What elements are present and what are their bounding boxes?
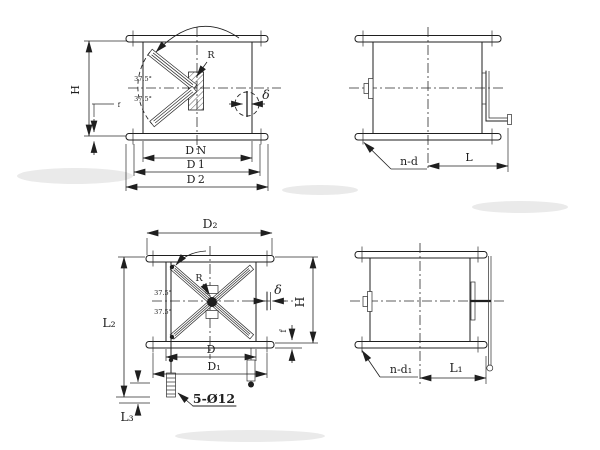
smudge <box>472 201 568 213</box>
label-f: f <box>279 328 288 332</box>
smudge <box>17 168 133 184</box>
drawing-canvas: H R 37.5° 37.5° <box>0 0 600 450</box>
shaft-end-inner <box>368 292 373 312</box>
label-d2: D2 <box>187 173 208 186</box>
bracket-end-tab <box>508 115 512 125</box>
hanging-bolt <box>247 348 255 388</box>
square-side-view: n-d₁ L₁ <box>350 243 505 384</box>
l1-dimension: L₁ <box>420 356 486 384</box>
label-l3: L₃ <box>120 409 133 424</box>
blade-line <box>152 55 192 87</box>
anchor-bolt-callout: 5-Ø12 <box>178 391 236 406</box>
round-side-view: n-d L <box>349 27 512 172</box>
hinge-pin <box>170 265 174 269</box>
leader <box>178 393 193 406</box>
label-angle-lower: 37.5° <box>134 95 152 103</box>
operating-rod <box>167 262 176 397</box>
bearing-block-lower <box>206 311 218 319</box>
d2-dimension: D₂ <box>147 216 272 255</box>
threaded-stud <box>167 373 176 397</box>
center-hub <box>207 297 217 307</box>
side-bracket <box>482 71 512 125</box>
blade-thickness-detail: δ <box>229 87 270 117</box>
l2-dimension: L₂ <box>102 257 150 397</box>
blade-line <box>154 90 192 121</box>
bolt-head <box>248 382 254 388</box>
label-d1: D1 <box>187 158 208 171</box>
label-l1: L₁ <box>449 360 462 375</box>
label-dn: DN <box>185 144 208 157</box>
leader <box>364 143 391 170</box>
label-angle-lower: 37.5° <box>154 308 172 316</box>
rod-end-eye <box>487 365 493 371</box>
label-delta: δ <box>262 87 270 102</box>
smudge <box>282 185 358 195</box>
shaft-end-outer <box>363 297 368 307</box>
blade-thickness-dimension: δ <box>252 282 286 310</box>
bolt-holes-callout: n-d₁ <box>362 351 418 378</box>
label-angle-upper: 37.5° <box>154 289 172 297</box>
bolt-holes-callout: n-d <box>364 143 427 170</box>
bolt-body <box>247 360 255 381</box>
round-front-view: H R 37.5° 37.5° <box>69 26 281 191</box>
hinge-pin <box>170 335 174 339</box>
shaft-end-inner <box>369 79 374 99</box>
blade-upper-position <box>148 49 197 90</box>
h-dimension: H <box>69 41 128 136</box>
hinge-pin <box>169 358 173 362</box>
label-angle-upper: 37.5° <box>134 75 152 83</box>
label-d2: D₂ <box>202 216 217 231</box>
leader <box>362 351 380 378</box>
label-d1: D₁ <box>207 360 220 373</box>
label-l: L <box>465 151 473 164</box>
label-d: D <box>207 343 216 356</box>
label-h: H <box>69 85 82 95</box>
label-delta: δ <box>274 282 282 297</box>
label-r: R <box>207 50 215 61</box>
blade-line <box>155 92 193 123</box>
label-l2: L₂ <box>102 315 115 330</box>
bracket-inner <box>489 71 508 118</box>
label-h: H <box>292 296 307 307</box>
top-flange <box>146 256 274 263</box>
blade-strip <box>148 49 197 90</box>
side-rod <box>487 256 493 371</box>
flange-thickness-dimension: f <box>275 325 302 363</box>
smudge <box>175 430 325 442</box>
top-flange <box>355 252 487 259</box>
shaft-end-outer <box>364 84 369 94</box>
label-5-d12: 5-Ø12 <box>193 391 235 406</box>
label-f: f <box>118 101 121 109</box>
bottom-flange <box>355 342 487 349</box>
square-front-view: D₂ R 37.5° 37.5° <box>102 216 318 424</box>
label-r: R <box>195 273 203 284</box>
blade-line <box>153 53 193 85</box>
flange-thickness-dimension: f <box>92 101 121 155</box>
label-n-d: n-d <box>400 155 418 168</box>
engineering-drawing-page: H R 37.5° 37.5° <box>0 0 600 450</box>
label-n-d1: n-d₁ <box>390 363 412 376</box>
